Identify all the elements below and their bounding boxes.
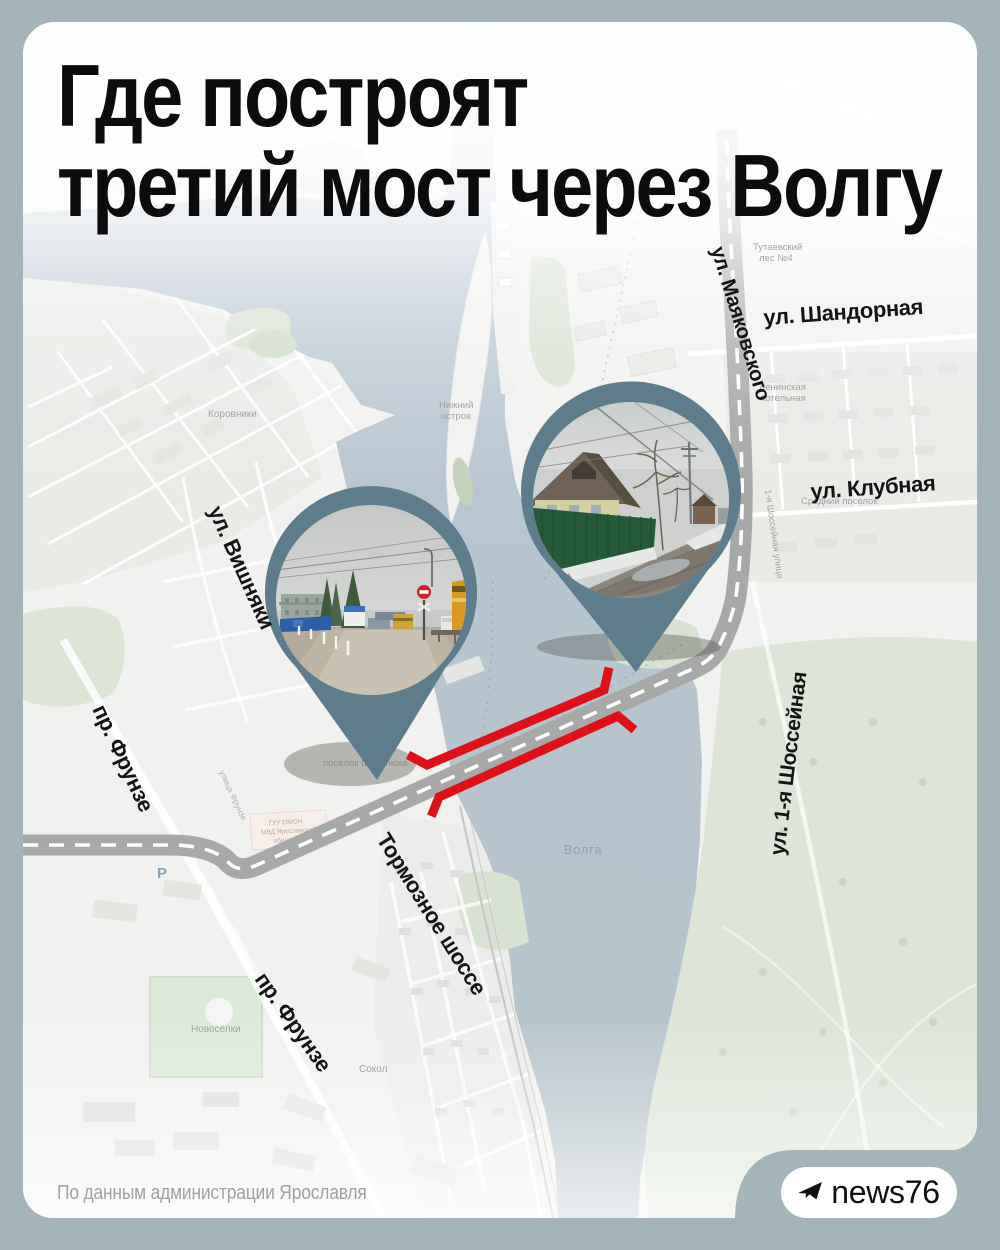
svg-text:Коровники: Коровники (208, 409, 257, 420)
svg-text:Волга: Волга (564, 843, 603, 857)
svg-text:Сокол: Сокол (359, 1064, 388, 1075)
svg-text:Нижний: Нижний (439, 400, 473, 411)
svg-text:P: P (157, 865, 167, 882)
svg-text:лес №4: лес №4 (759, 253, 793, 264)
svg-text:Тутаевский: Тутаевский (753, 242, 802, 253)
svg-text:Новоселки: Новоселки (191, 1024, 241, 1035)
svg-text:остров: остров (441, 411, 471, 422)
